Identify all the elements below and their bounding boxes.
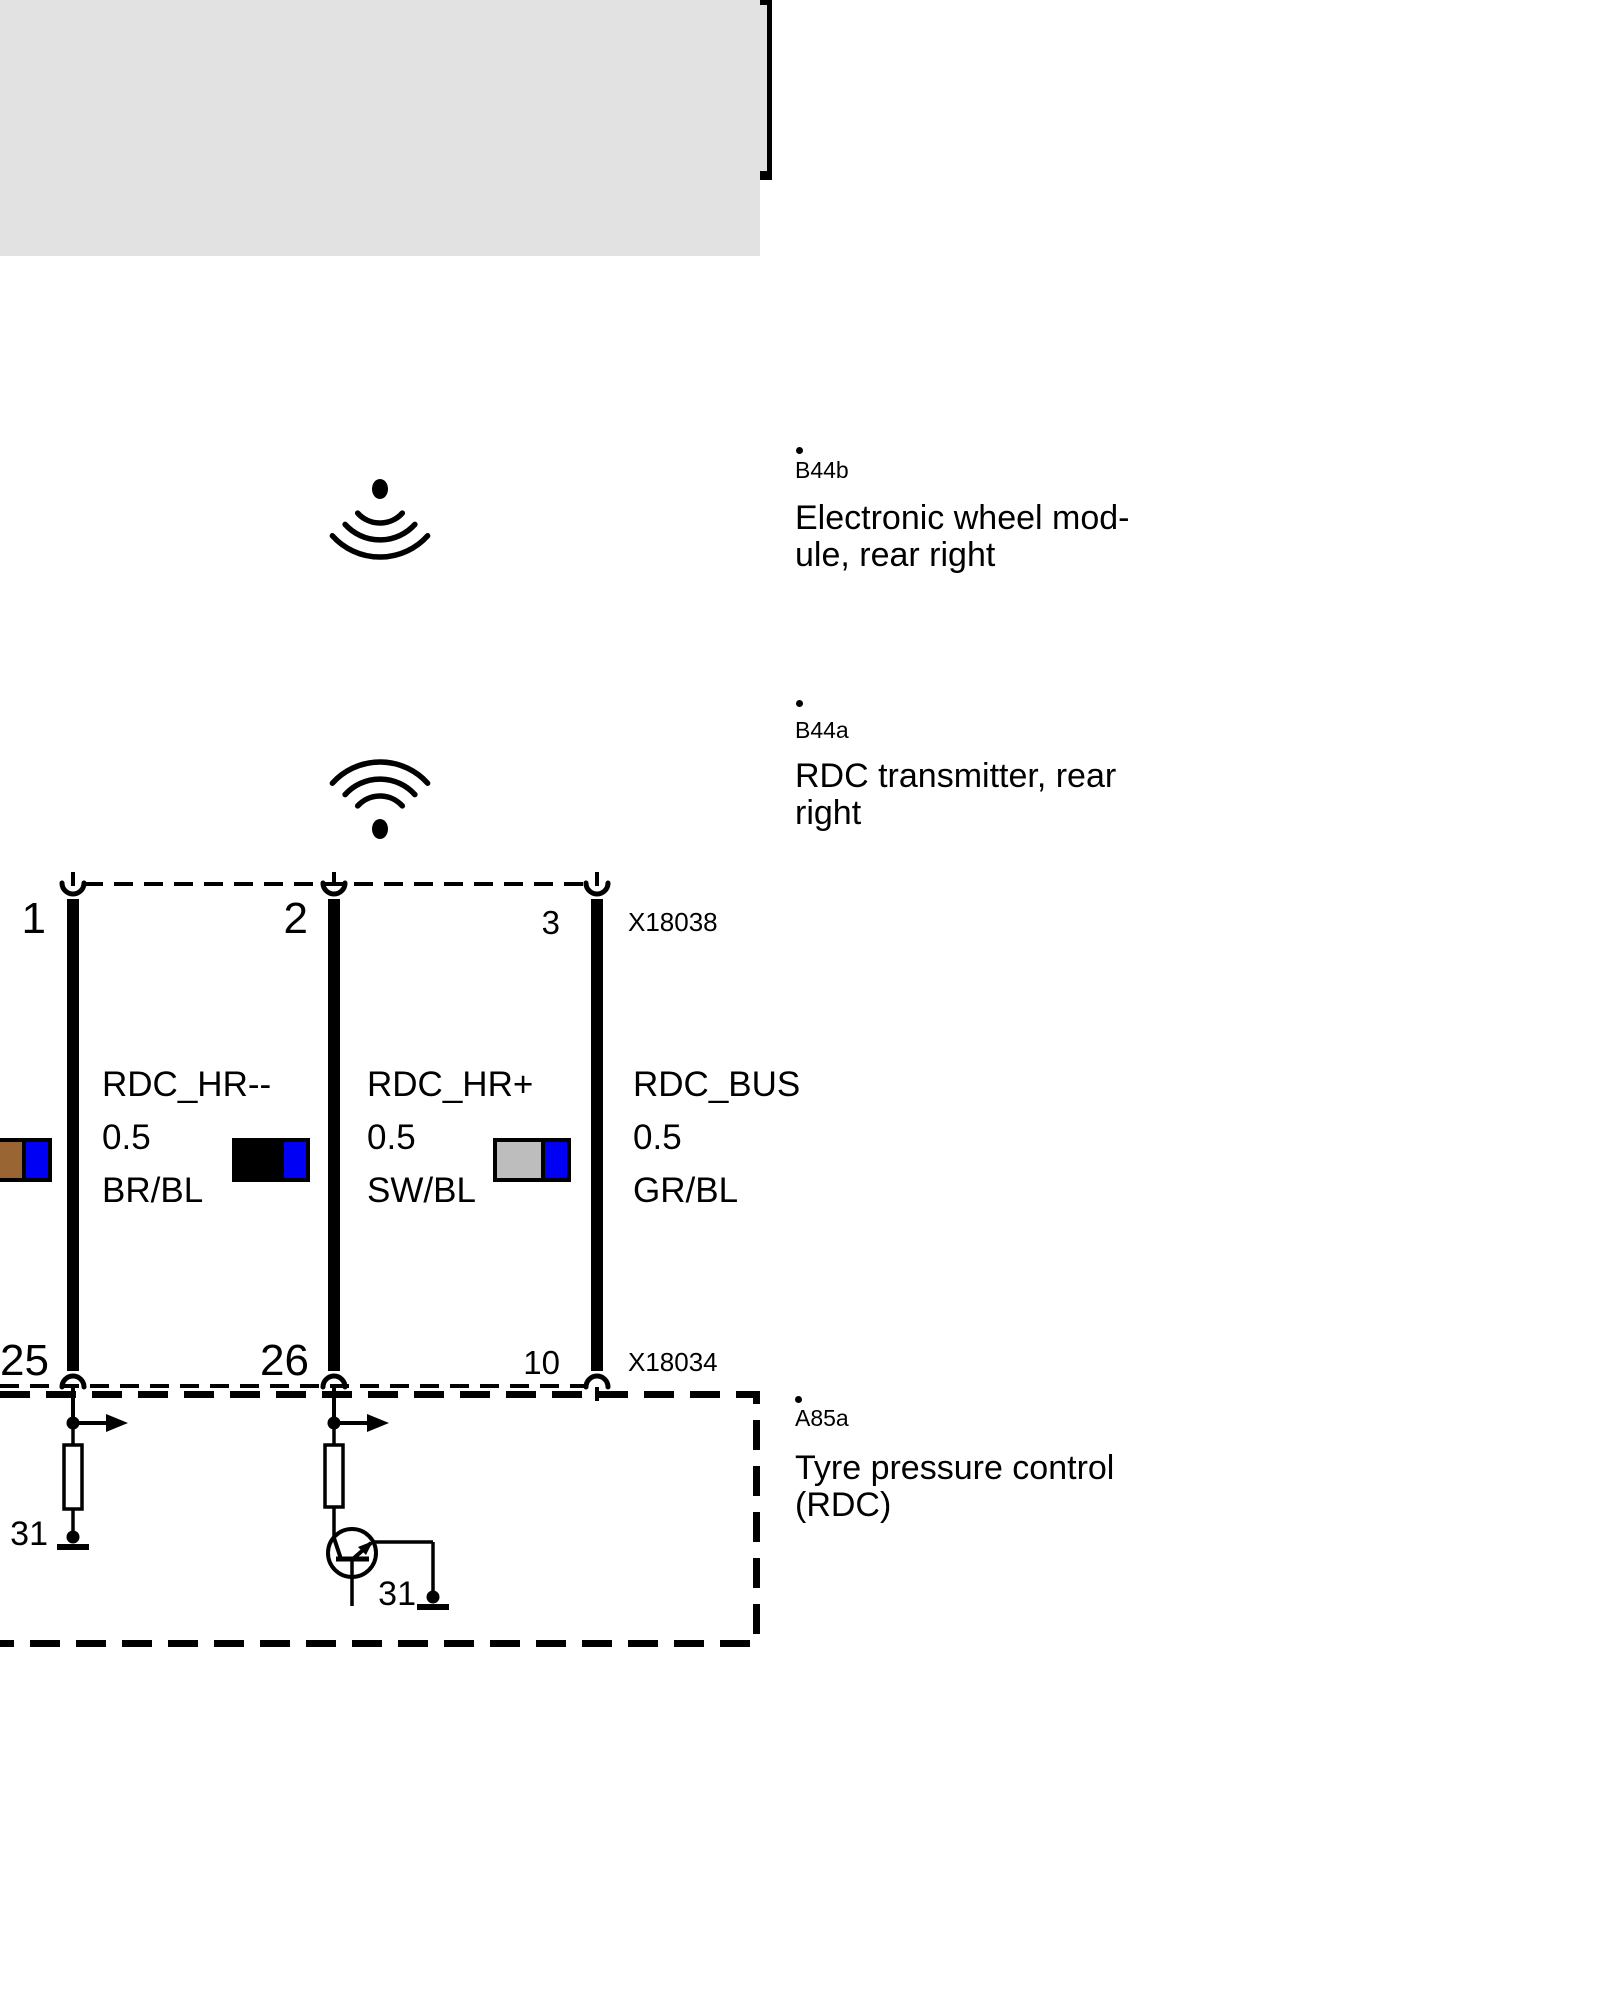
connector-cup-icon: [586, 1376, 608, 1387]
signal-direction-arrow-icon: [106, 1414, 128, 1432]
wire-color-swatch-black-blue: [232, 1138, 310, 1182]
component-id-a85a: A85a: [795, 1406, 849, 1430]
component-description-b44a: RDC transmitter, rear right: [795, 758, 1116, 832]
swatch-main-color: [0, 1142, 22, 1178]
wire-size-label: 0.5: [633, 1111, 800, 1164]
component-id-b44a: B44a: [795, 718, 849, 742]
pin-number-3: 3: [520, 906, 560, 940]
wire-color-swatch-brown-blue: [0, 1138, 52, 1182]
connector-x18038-symbols: [62, 872, 608, 894]
wiring-diagram-page: B44b Electronic wheel mod- ule, rear rig…: [0, 0, 1600, 2000]
wireless-signal-up-icon: [332, 762, 427, 839]
component-dot: [796, 700, 803, 707]
description-line: RDC transmitter, rear: [795, 758, 1116, 795]
wire-label-rdc-bus: RDC_BUS 0.5 GR/BL: [633, 1058, 800, 1217]
component-dot: [795, 1396, 802, 1403]
pin-number-1: 1: [10, 896, 46, 942]
component-dot: [796, 447, 803, 454]
wire-line-rdc-hr-minus: [67, 899, 79, 1371]
ground-icon: [417, 1591, 449, 1611]
swatch-main-color: [497, 1142, 541, 1178]
wireless-signal-down-icon: [332, 479, 427, 557]
pin-number-10: 10: [520, 1346, 560, 1380]
ground-label-31: 31: [372, 1576, 416, 1612]
swatch-main-color: [236, 1142, 280, 1178]
description-line: ule, rear right: [795, 537, 1129, 574]
pin-number-25: 25: [0, 1338, 48, 1384]
swatch-stripe-color: [545, 1142, 567, 1178]
diagram-linework: [0, 0, 1600, 2000]
wire-signal-label: RDC_HR+: [367, 1058, 533, 1111]
resistor-icon: [64, 1445, 82, 1509]
wire-line-rdc-bus: [591, 899, 603, 1371]
connector-id-x18034: X18034: [628, 1348, 718, 1376]
internal-branch-1: [57, 1414, 128, 1550]
swatch-stripe-color: [284, 1142, 306, 1178]
ground-icon: [57, 1531, 89, 1551]
component-description-b44b: Electronic wheel mod- ule, rear right: [795, 500, 1129, 574]
description-line: right: [795, 795, 1116, 832]
connector-id-x18038: X18038: [628, 908, 718, 936]
wire-line-rdc-hr-plus: [328, 899, 340, 1371]
description-line: Tyre pressure control: [795, 1450, 1114, 1487]
description-line: Electronic wheel mod-: [795, 500, 1129, 537]
resistor-icon: [325, 1445, 343, 1507]
wire-signal-label: RDC_BUS: [633, 1058, 800, 1111]
pin-number-2: 2: [262, 896, 308, 942]
wire-color-label: GR/BL: [633, 1164, 800, 1217]
swatch-stripe-color: [26, 1142, 48, 1178]
component-id-b44b: B44b: [795, 458, 849, 482]
pin-stub: [595, 872, 599, 886]
description-line: (RDC): [795, 1487, 1114, 1524]
pin-number-26: 26: [260, 1338, 308, 1384]
ground-label-31: 31: [4, 1516, 48, 1552]
component-description-a85a: Tyre pressure control (RDC): [795, 1450, 1114, 1524]
wire-signal-label: RDC_HR--: [102, 1058, 271, 1111]
signal-direction-arrow-icon: [367, 1414, 389, 1432]
wire-color-swatch-gray-blue: [493, 1138, 571, 1182]
pin-stub: [71, 872, 75, 886]
